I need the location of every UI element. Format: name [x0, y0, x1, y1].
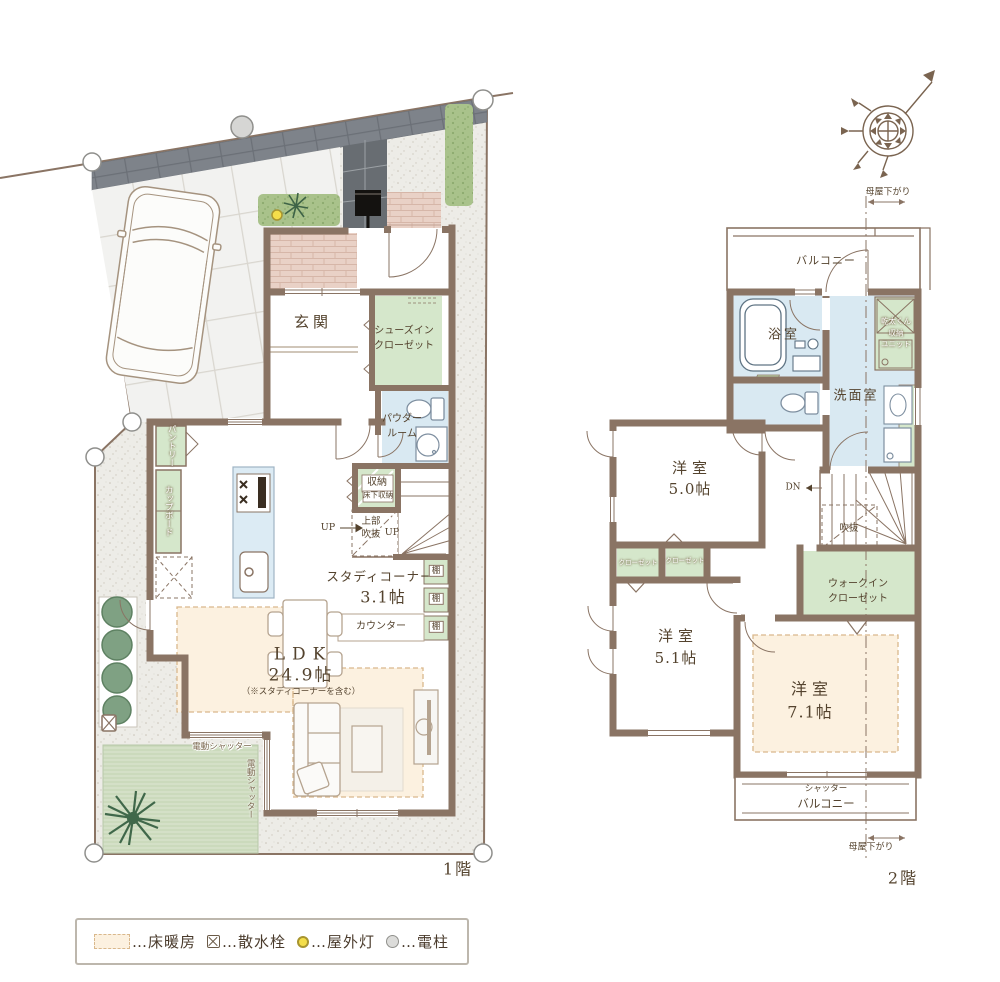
outdoor-light-icon [272, 210, 282, 220]
vanity-2f [884, 386, 912, 424]
washbasin-1f [416, 427, 447, 461]
washing-machine [884, 428, 911, 462]
legend-floor-heating: …床暖房 [94, 931, 196, 952]
balcony-2f [727, 228, 930, 290]
legend-water-tap: …散水栓 [207, 931, 286, 952]
legend-utility-pole-label: …電柱 [401, 931, 449, 952]
outdoor-light-swatch-icon [297, 936, 309, 948]
house-2f [587, 70, 935, 858]
shutter-balcony [735, 777, 916, 820]
dryer-unit [875, 297, 916, 370]
utility-pole-swatch-icon [386, 935, 399, 948]
bathtub [740, 299, 786, 371]
legend-utility-pole: …電柱 [386, 931, 449, 952]
tv-board [414, 690, 438, 764]
legend-outdoor-light-label: …屋外灯 [311, 931, 375, 952]
legend-water-tap-label: …散水栓 [222, 931, 286, 952]
hedge [445, 104, 473, 206]
kitchen-island [233, 467, 274, 598]
floor-heating-swatch-icon [94, 934, 130, 949]
floor-plan-page: 玄関 シューズイン クローゼット パウダー ルーム 収納 床下収納 上部 吹抜 … [0, 0, 1000, 982]
legend-outdoor-light: …屋外灯 [297, 931, 375, 952]
toilet-2f [781, 392, 818, 414]
toilet-1f [407, 398, 444, 420]
lawn [103, 745, 258, 853]
stairs-2f [806, 470, 912, 548]
water-tap-swatch-icon [207, 935, 220, 948]
water-tap-icon [102, 715, 116, 731]
compass-icon [841, 70, 935, 178]
legend: …床暖房 …散水栓 …屋外灯 …電柱 [75, 918, 469, 965]
floor-plan-drawing [0, 0, 1000, 982]
legend-floor-heating-label: …床暖房 [132, 931, 196, 952]
low-table [352, 726, 382, 772]
sofa [294, 703, 340, 796]
